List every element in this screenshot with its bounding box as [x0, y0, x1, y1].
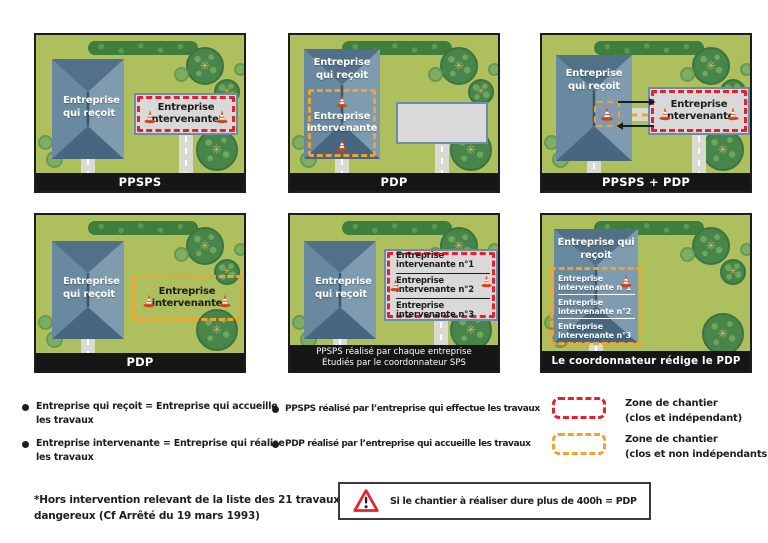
traffic-cone-icon [142, 293, 156, 308]
tree-icon [174, 67, 189, 82]
zone-type-line: Zone de chantier [625, 398, 718, 409]
traffic-cone-icon [726, 106, 740, 121]
empty-sign [396, 102, 488, 144]
building-label: Entreprise qui reçoit [52, 275, 124, 301]
exchange-arrows-icon [616, 95, 656, 133]
building-label: Entreprise qui reçoit [304, 56, 380, 82]
zone-type-line: (clos et indépendant) [625, 413, 742, 424]
building-label: Entreprise qui reçoit [304, 275, 376, 301]
hedge-icon [88, 221, 198, 235]
panel-caption-line1: PPSPS réalisé par chaque entreprise [316, 347, 472, 358]
bullet-icon [272, 441, 279, 448]
bullet-icon [22, 441, 29, 448]
traffic-cone-icon [215, 109, 229, 124]
receiving-company-building: Entreprise qui reçoit [304, 241, 376, 339]
panel-caption-line2: Étudiés par le coordonnateur SPS [322, 358, 466, 369]
footnote: *Hors intervention relevant de la liste … [34, 492, 340, 524]
panel-ppsps-multiple: Entreprise qui reçoit Entreprise interve… [288, 213, 500, 373]
tree-icon [702, 313, 744, 355]
legend-line: Entreprise qui reçoit = Entreprise qui a… [36, 401, 278, 412]
tree-icon [234, 243, 246, 256]
panel-ppsps: Entreprise qui reçoit Entreprise interve… [34, 33, 246, 193]
legend-definition: PDP réalisé par l’entreprise qui accueil… [285, 437, 531, 451]
zone-label: Entreprise intervenante n°3 [558, 319, 635, 342]
traffic-cone-icon [619, 273, 633, 288]
tree-icon [428, 67, 443, 82]
tree-icon [186, 227, 224, 265]
intervening-company-zone: Entreprise intervenante* [134, 93, 238, 135]
intervening-company-zone: Entreprise intervenante [132, 275, 242, 321]
building-label: Entreprise qui reçoit [52, 94, 124, 120]
tree-icon [692, 47, 730, 85]
zone-label: Entreprise intervenante n°2 [558, 295, 635, 319]
road [179, 134, 193, 175]
traffic-cone-icon [389, 278, 402, 292]
footnote-line: *Hors intervention relevant de la liste … [34, 494, 340, 506]
warning-text: Si le chantier à réaliser dure plus de 4… [390, 496, 637, 507]
tree-icon [720, 259, 746, 285]
warning-box: Si le chantier à réaliser dure plus de 4… [338, 482, 651, 520]
legend-definition: Entreprise intervenante = Entreprise qui… [36, 437, 285, 465]
traffic-cone-icon [658, 106, 672, 121]
tree-icon [680, 247, 695, 262]
zone-label: Entreprise intervenante n°2 [396, 274, 490, 299]
intervening-companies-zone: Entreprise intervenante n°1 Entreprise i… [550, 267, 642, 345]
traffic-cone-icon [336, 138, 349, 152]
road [692, 134, 706, 175]
zone-label: Entreprise intervenante n°3 [396, 299, 490, 323]
traffic-cone-icon [480, 274, 493, 288]
road [434, 320, 448, 347]
traffic-cone-icon [143, 109, 157, 124]
tree-icon [740, 63, 752, 76]
road [435, 144, 449, 175]
bullet-icon [272, 406, 279, 413]
tree-icon [740, 243, 752, 256]
legend-definition: PPSPS réalisé par l’entreprise qui effec… [285, 402, 540, 416]
orange-dashed-zone-swatch [552, 433, 606, 455]
footnote-line: dangereux (Cf Arrêté du 19 mars 1993) [34, 510, 260, 522]
red-dashed-zone-swatch [552, 397, 606, 419]
intervening-company-zone: Entreprise intervenante [308, 89, 376, 157]
hedge-icon [342, 221, 452, 235]
tree-icon [488, 63, 500, 76]
panel-coordinator-pdp: Entreprise qui reçoit Entreprise interve… [540, 213, 752, 373]
zone-type-line: (clos et non indépendants) [625, 449, 768, 460]
tree-icon [234, 63, 246, 76]
tree-icon [38, 135, 53, 150]
traffic-cone-icon [218, 293, 232, 308]
panel-pdp-2: Entreprise qui reçoit Entreprise interve… [34, 213, 246, 373]
tree-icon [174, 247, 189, 262]
tree-icon [680, 67, 695, 82]
tree-icon [186, 47, 224, 85]
receiving-company-building: Entreprise qui reçoit [52, 241, 124, 339]
panel-caption: PPSPS + PDP [542, 173, 750, 191]
panel-caption: PDP [36, 353, 244, 371]
zone-label: Entreprise intervenante n°1 [396, 249, 490, 274]
panel-ppsps-pdp: Entreprise qui reçoit Entreprise interve… [540, 33, 752, 193]
infographic-canvas: Entreprise qui reçoit Entreprise interve… [0, 0, 768, 543]
traffic-cone-icon [336, 94, 349, 108]
panel-caption: PPSPS [36, 173, 244, 191]
zone-type-label: Zone de chantier (clos et indépendant) [625, 396, 742, 426]
panel-caption: PDP [290, 173, 498, 191]
legend-line: Entreprise intervenante = Entreprise qui… [36, 438, 285, 449]
warning-triangle-icon [352, 488, 380, 514]
building-label: Entreprise qui reçoit [556, 67, 632, 93]
hedge-icon [594, 41, 704, 55]
hedge-icon [88, 41, 198, 55]
legend-line: les travaux [36, 415, 94, 426]
receiving-company-building: Entreprise qui reçoit [52, 59, 124, 159]
bullet-icon [22, 404, 29, 411]
tree-icon [196, 129, 238, 171]
legend-line: les travaux [36, 452, 94, 463]
tree-icon [692, 227, 730, 265]
tree-icon [440, 47, 478, 85]
intervening-companies-zone: Entreprise intervenante n°1 Entreprise i… [384, 249, 498, 321]
zone-type-label: Zone de chantier (clos et non indépendan… [625, 432, 768, 462]
panel-pdp-1: Entreprise qui reçoit Entreprise interve… [288, 33, 500, 193]
panel-caption: PPSPS réalisé par chaque entreprise Étud… [290, 345, 498, 371]
legend-definition: Entreprise qui reçoit = Entreprise qui a… [36, 400, 278, 428]
tree-icon [38, 315, 53, 330]
traffic-cone-icon [600, 106, 615, 122]
tree-icon [702, 129, 744, 171]
panel-caption: Le coordonnateur rédige le PDP [542, 351, 750, 371]
zone-type-line: Zone de chantier [625, 434, 718, 445]
intervening-company-zone: Entreprise intervenante [648, 87, 750, 135]
building-label: Entreprise qui reçoit [554, 236, 638, 262]
